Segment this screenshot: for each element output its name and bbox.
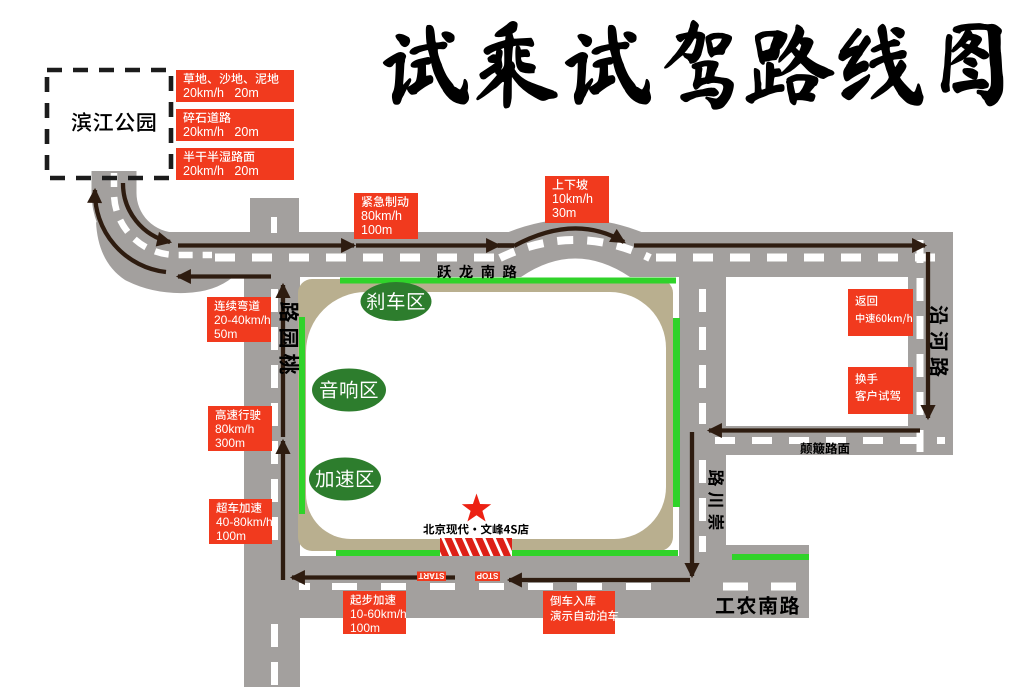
svg-text:100m: 100m (361, 223, 392, 237)
svg-text:50m: 50m (214, 327, 237, 341)
svg-text:20km/h 20m: 20km/h 20m (183, 86, 259, 100)
svg-text:100m: 100m (216, 529, 246, 543)
svg-text:80km/h: 80km/h (215, 422, 254, 436)
svg-text:20km/h 20m: 20km/h 20m (183, 164, 259, 178)
svg-text:20km/h 20m: 20km/h 20m (183, 125, 259, 139)
svg-text:START: START (418, 571, 444, 580)
svg-text:300m: 300m (215, 436, 245, 450)
svg-text:10-60km/h: 10-60km/h (350, 607, 407, 621)
svg-text:100m: 100m (350, 621, 380, 635)
svg-text:80km/h: 80km/h (361, 209, 402, 223)
svg-text:30m: 30m (552, 206, 576, 220)
svg-text:40-80km/h: 40-80km/h (216, 515, 273, 529)
svg-text:STOP: STOP (476, 571, 498, 580)
svg-text:20-40km/h: 20-40km/h (214, 313, 271, 327)
svg-text:10km/h: 10km/h (552, 192, 593, 206)
